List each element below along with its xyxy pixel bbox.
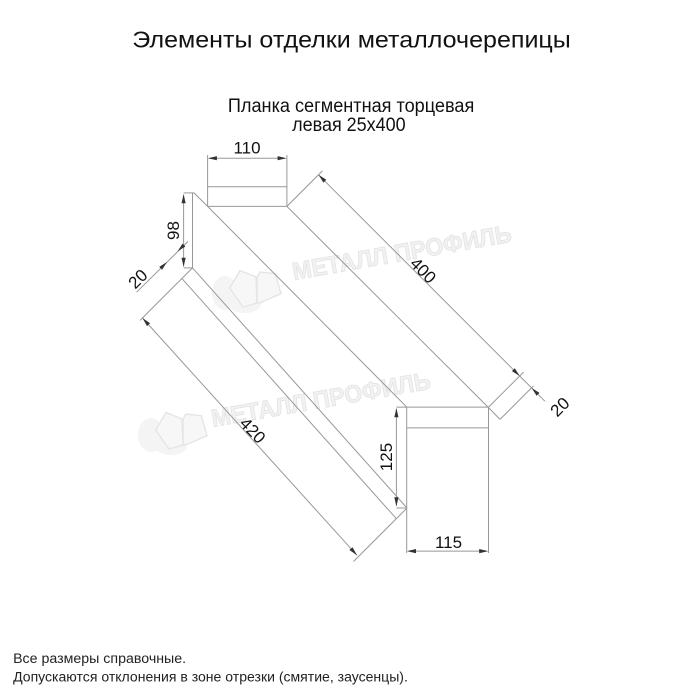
svg-text:125: 125	[377, 443, 396, 471]
svg-text:115: 115	[435, 533, 462, 552]
svg-text:Все размеры справочные.: Все размеры справочные.	[13, 651, 186, 666]
svg-text:Допускаются отклонения в зоне: Допускаются отклонения в зоне отрезки (с…	[13, 669, 408, 684]
svg-text:левая 25х400: левая 25х400	[292, 115, 406, 136]
svg-text:98: 98	[164, 221, 183, 240]
svg-text:Элементы отделки металлочерепи: Элементы отделки металлочерепицы	[132, 26, 571, 52]
svg-text:110: 110	[233, 139, 260, 158]
